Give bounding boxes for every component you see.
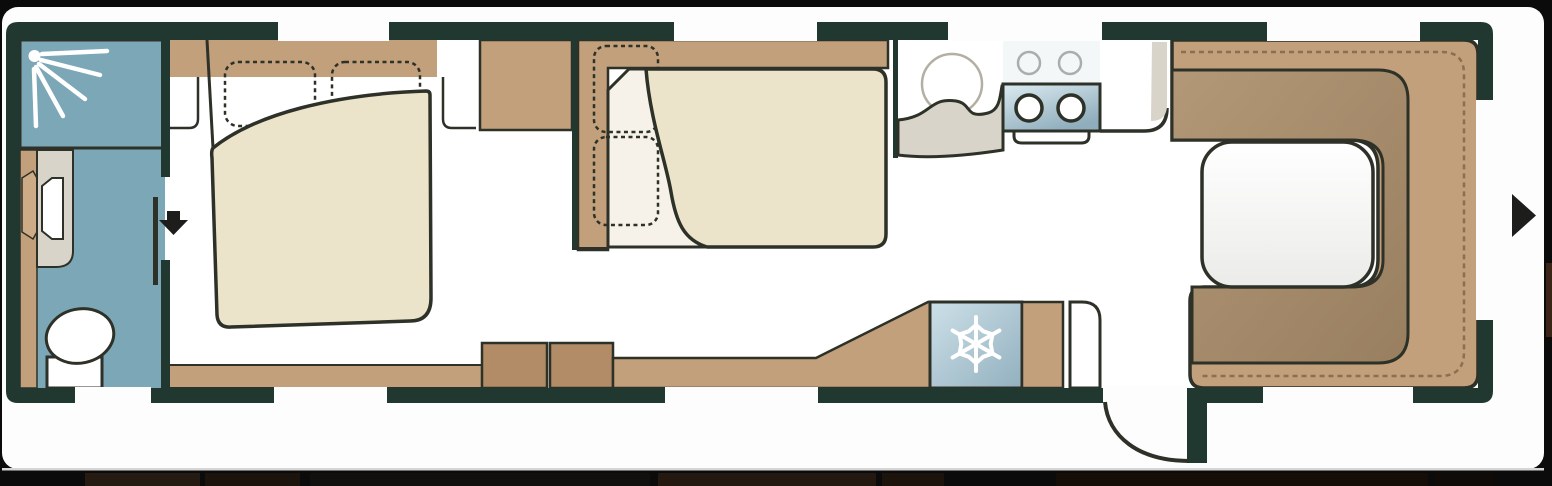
dinette-table — [646, 69, 886, 247]
washroom-wall-lower — [161, 260, 170, 388]
nightstand-right-fill — [444, 77, 476, 128]
thumbnail[interactable] — [658, 473, 876, 486]
sliding-door-leaf — [153, 197, 158, 285]
entry-step-cabinet — [1070, 302, 1100, 388]
wardrobe — [480, 40, 572, 130]
screenshot-stage — [0, 0, 1552, 486]
hob-burner-large-1 — [1016, 95, 1042, 121]
window-bottom-4 — [1263, 387, 1413, 404]
window-top-4 — [1267, 21, 1420, 41]
washroom-wall-upper — [161, 40, 170, 177]
thumbnail[interactable] — [1434, 473, 1494, 486]
thumbnail[interactable] — [85, 473, 200, 486]
fridge-side-cabinet — [1022, 302, 1063, 388]
entrance-door-jamb — [1187, 388, 1207, 463]
card-bottom-edge — [2, 468, 1544, 471]
sideboard-block-1 — [482, 343, 547, 388]
rear-lounge — [1172, 40, 1478, 388]
thumbnail[interactable] — [205, 473, 300, 486]
window-bottom-3 — [665, 387, 818, 404]
window-rear — [1476, 100, 1495, 320]
washroom — [20, 40, 165, 388]
thumbnail[interactable] — [1056, 473, 1428, 486]
lounge-table — [1202, 142, 1373, 287]
thumbnail[interactable] — [310, 473, 650, 486]
thumbnail-strip[interactable] — [85, 473, 1494, 486]
entrance-door-opening — [1103, 386, 1189, 405]
worktop-end-panel — [1151, 42, 1167, 121]
floorplan-svg[interactable] — [0, 0, 1552, 486]
hob-burner-large-2 — [1058, 95, 1084, 121]
sideboard-block-2 — [550, 343, 613, 388]
window-top-3 — [948, 21, 1102, 41]
nightstand-left-fill — [170, 77, 198, 128]
bed-duvet — [212, 91, 431, 327]
window-bottom-2 — [274, 387, 387, 404]
window-bottom-1 — [75, 387, 151, 404]
cabinet-door-fold — [22, 171, 37, 239]
thumbnail[interactable] — [882, 473, 944, 486]
sideboard-low — [165, 365, 482, 388]
edge-crop-sliver — [1546, 263, 1552, 337]
window-top-2 — [674, 21, 817, 41]
vanity-basin — [42, 178, 63, 239]
window-top-1 — [278, 21, 389, 41]
